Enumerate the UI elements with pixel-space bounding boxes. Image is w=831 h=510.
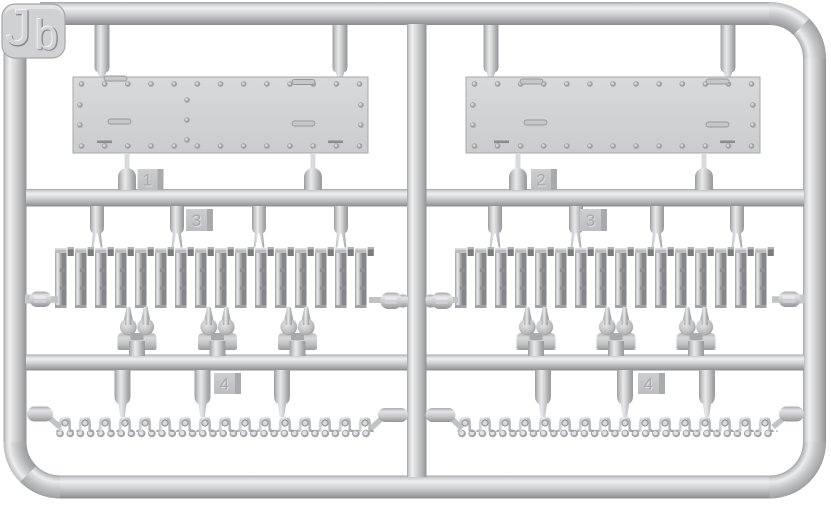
svg-text:J: J — [6, 0, 31, 56]
svg-text:3: 3 — [192, 211, 201, 230]
svg-text:3: 3 — [586, 211, 595, 230]
svg-text:1: 1 — [143, 171, 152, 190]
svg-text:4: 4 — [220, 375, 229, 394]
svg-text:b: b — [35, 11, 58, 58]
svg-text:2: 2 — [536, 171, 545, 190]
svg-text:4: 4 — [644, 375, 653, 394]
